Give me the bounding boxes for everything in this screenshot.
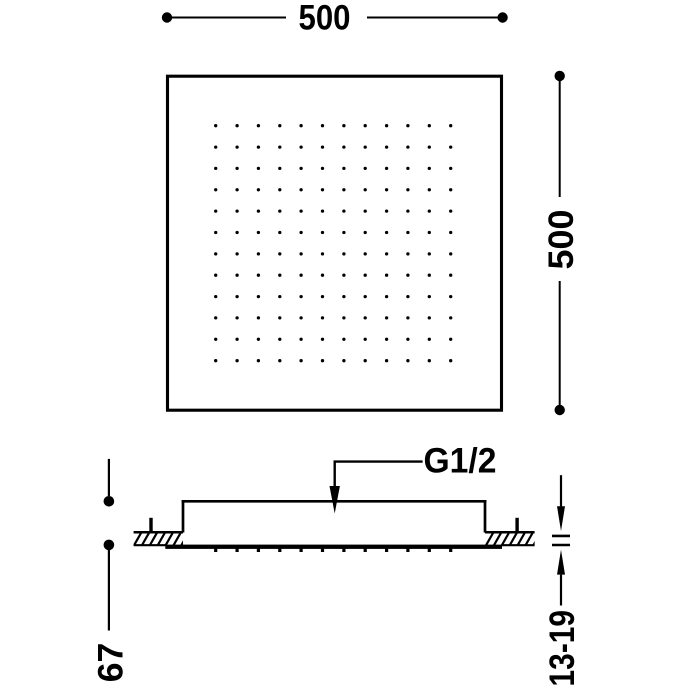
svg-text:G1/2: G1/2 (424, 442, 497, 481)
svg-text:500: 500 (542, 210, 581, 270)
svg-text:67: 67 (92, 643, 131, 683)
svg-text:500: 500 (299, 0, 351, 38)
svg-text:13-19: 13-19 (543, 610, 582, 687)
